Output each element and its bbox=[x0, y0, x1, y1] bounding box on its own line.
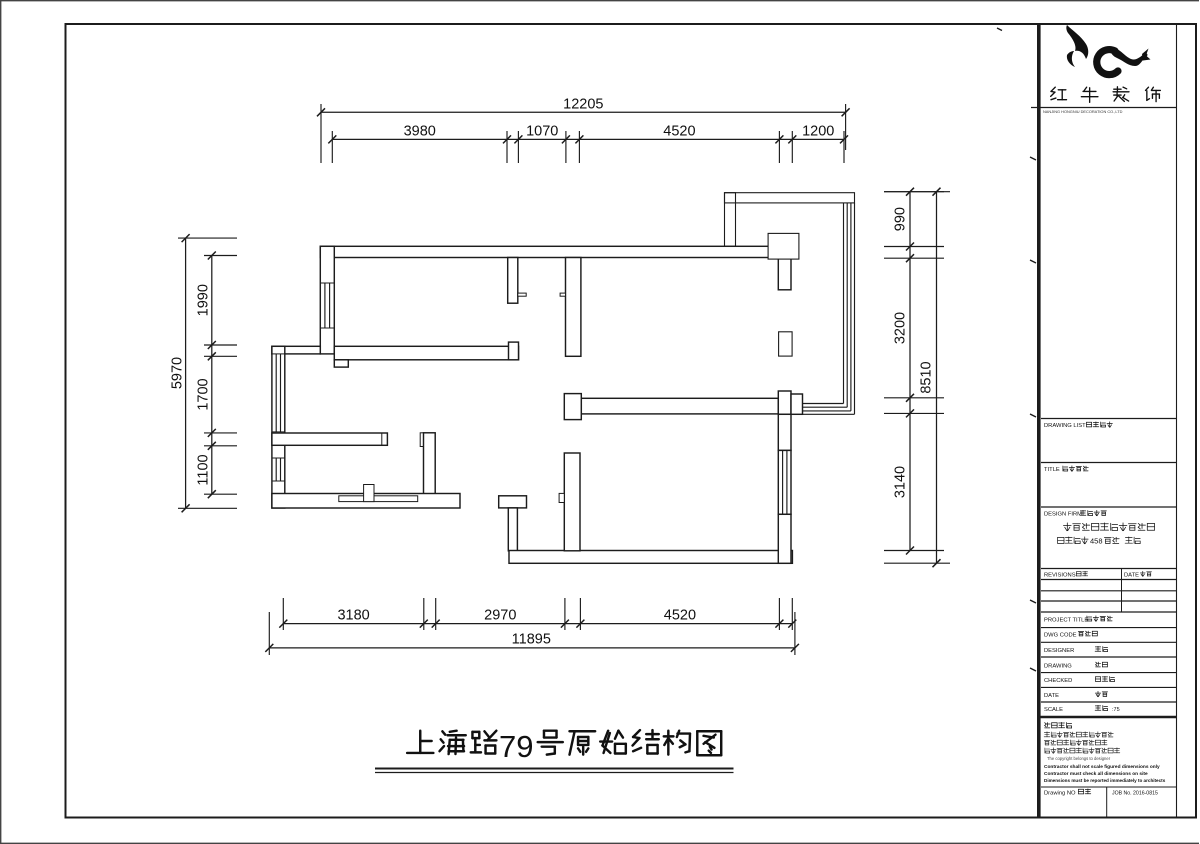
svg-text::75: :75 bbox=[1112, 707, 1120, 713]
svg-text:JOB No. 2016-0815: JOB No. 2016-0815 bbox=[1112, 791, 1158, 797]
svg-text:DRAWING: DRAWING bbox=[1044, 664, 1072, 670]
svg-text:3140: 3140 bbox=[893, 466, 909, 498]
svg-text:Drawing NO: Drawing NO bbox=[1044, 791, 1076, 797]
svg-text:TITLE: TITLE bbox=[1044, 467, 1060, 473]
svg-text:3180: 3180 bbox=[337, 608, 369, 624]
svg-text:SCALE: SCALE bbox=[1044, 707, 1063, 713]
svg-text:2970: 2970 bbox=[484, 608, 516, 624]
svg-text:3200: 3200 bbox=[893, 312, 909, 344]
svg-text:NANJING HONGNIU DECORATION CO.: NANJING HONGNIU DECORATION CO.,LTD bbox=[1043, 109, 1123, 114]
svg-text:DATE: DATE bbox=[1044, 693, 1059, 699]
svg-text:1700: 1700 bbox=[196, 378, 212, 410]
svg-text:4520: 4520 bbox=[664, 608, 696, 624]
svg-text:Contractor shall not scale fig: Contractor shall not scale figured dimen… bbox=[1044, 764, 1160, 770]
svg-text:12205: 12205 bbox=[563, 97, 603, 113]
svg-text:1990: 1990 bbox=[196, 284, 212, 316]
svg-text:Dimensions must be reported im: Dimensions must be reported immediately … bbox=[1044, 778, 1166, 783]
svg-text:REVISIONS: REVISIONS bbox=[1044, 573, 1076, 579]
svg-text:458: 458 bbox=[1090, 537, 1103, 546]
svg-text:79: 79 bbox=[499, 729, 533, 764]
svg-text:PROJECT TITLE: PROJECT TITLE bbox=[1044, 618, 1088, 624]
svg-text:1100: 1100 bbox=[196, 454, 212, 485]
svg-text:8510: 8510 bbox=[919, 361, 935, 393]
svg-text:DWG CODE: DWG CODE bbox=[1044, 633, 1077, 639]
svg-text:Contractor must check all dime: Contractor must check all dimensions on … bbox=[1044, 771, 1148, 777]
svg-text:990: 990 bbox=[893, 207, 909, 231]
svg-text:DESIGNER: DESIGNER bbox=[1044, 648, 1074, 654]
svg-text:3980: 3980 bbox=[404, 124, 436, 140]
svg-text:DRAWING LIST: DRAWING LIST bbox=[1044, 423, 1086, 429]
svg-text:11895: 11895 bbox=[512, 632, 551, 648]
svg-text:DESIGN FIRM: DESIGN FIRM bbox=[1044, 512, 1082, 518]
svg-text:CHECKED: CHECKED bbox=[1044, 678, 1072, 684]
svg-text:1070: 1070 bbox=[526, 124, 558, 140]
svg-text:DATE: DATE bbox=[1124, 573, 1139, 579]
svg-text:5970: 5970 bbox=[170, 357, 186, 389]
svg-text:1200: 1200 bbox=[802, 124, 834, 140]
svg-text:The copyright belongs to desig: The copyright belongs to designer bbox=[1047, 756, 1111, 761]
svg-text:4520: 4520 bbox=[663, 124, 695, 140]
